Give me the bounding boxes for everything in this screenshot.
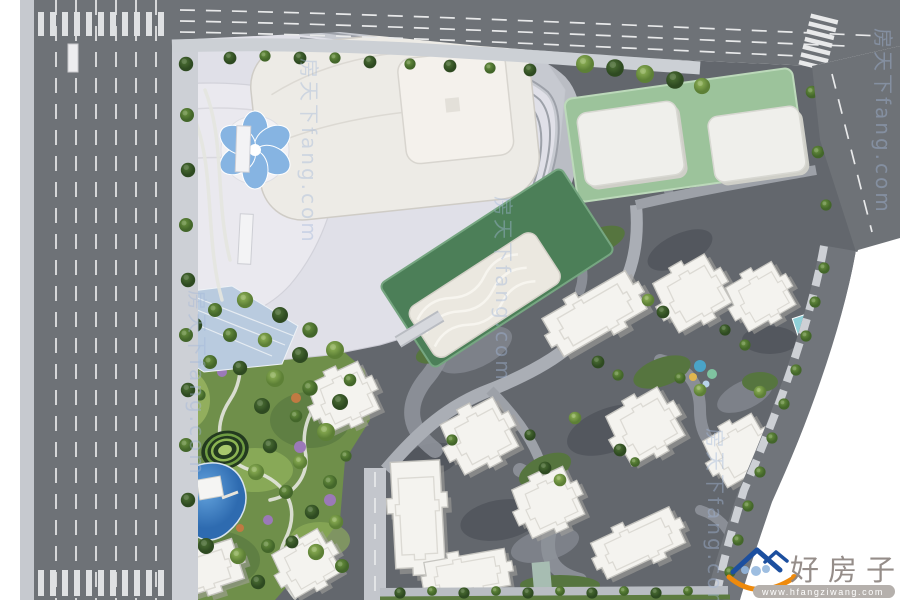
street-kiosk xyxy=(238,214,254,265)
bus-on-road xyxy=(68,44,78,72)
diagonal-watermark-text: 房天下fang.com xyxy=(871,28,895,215)
lake-pavilion xyxy=(196,476,223,500)
street-kiosk xyxy=(235,126,251,172)
corner-watermark-url: www.hfangziwang.com xyxy=(761,587,884,597)
retail-box-1 xyxy=(576,100,689,192)
left-road-outer-sidewalk xyxy=(20,0,34,600)
site-plan-rendering: 房天下fang.com 房天下fang.com 房天下fang.com 房天下f… xyxy=(0,0,900,600)
left-page-margin xyxy=(0,0,20,600)
south-edge-walk xyxy=(380,586,730,599)
diagonal-watermark-text: 房天下fang.com xyxy=(185,290,209,477)
diagonal-watermark-text: 房天下fang.com xyxy=(491,196,515,383)
diagonal-watermark-text: 房天下fang.com xyxy=(297,58,321,245)
corner-watermark-sitename: 好房子网 xyxy=(790,553,900,587)
site-plan-canvas: 房天下fang.com 房天下fang.com 房天下fang.com 房天下f… xyxy=(0,0,900,600)
left-road-lanes xyxy=(34,0,172,600)
left-road xyxy=(20,0,198,600)
diagonal-watermark-text: 房天下fang.com xyxy=(703,428,727,600)
retail-box-2 xyxy=(707,105,811,188)
